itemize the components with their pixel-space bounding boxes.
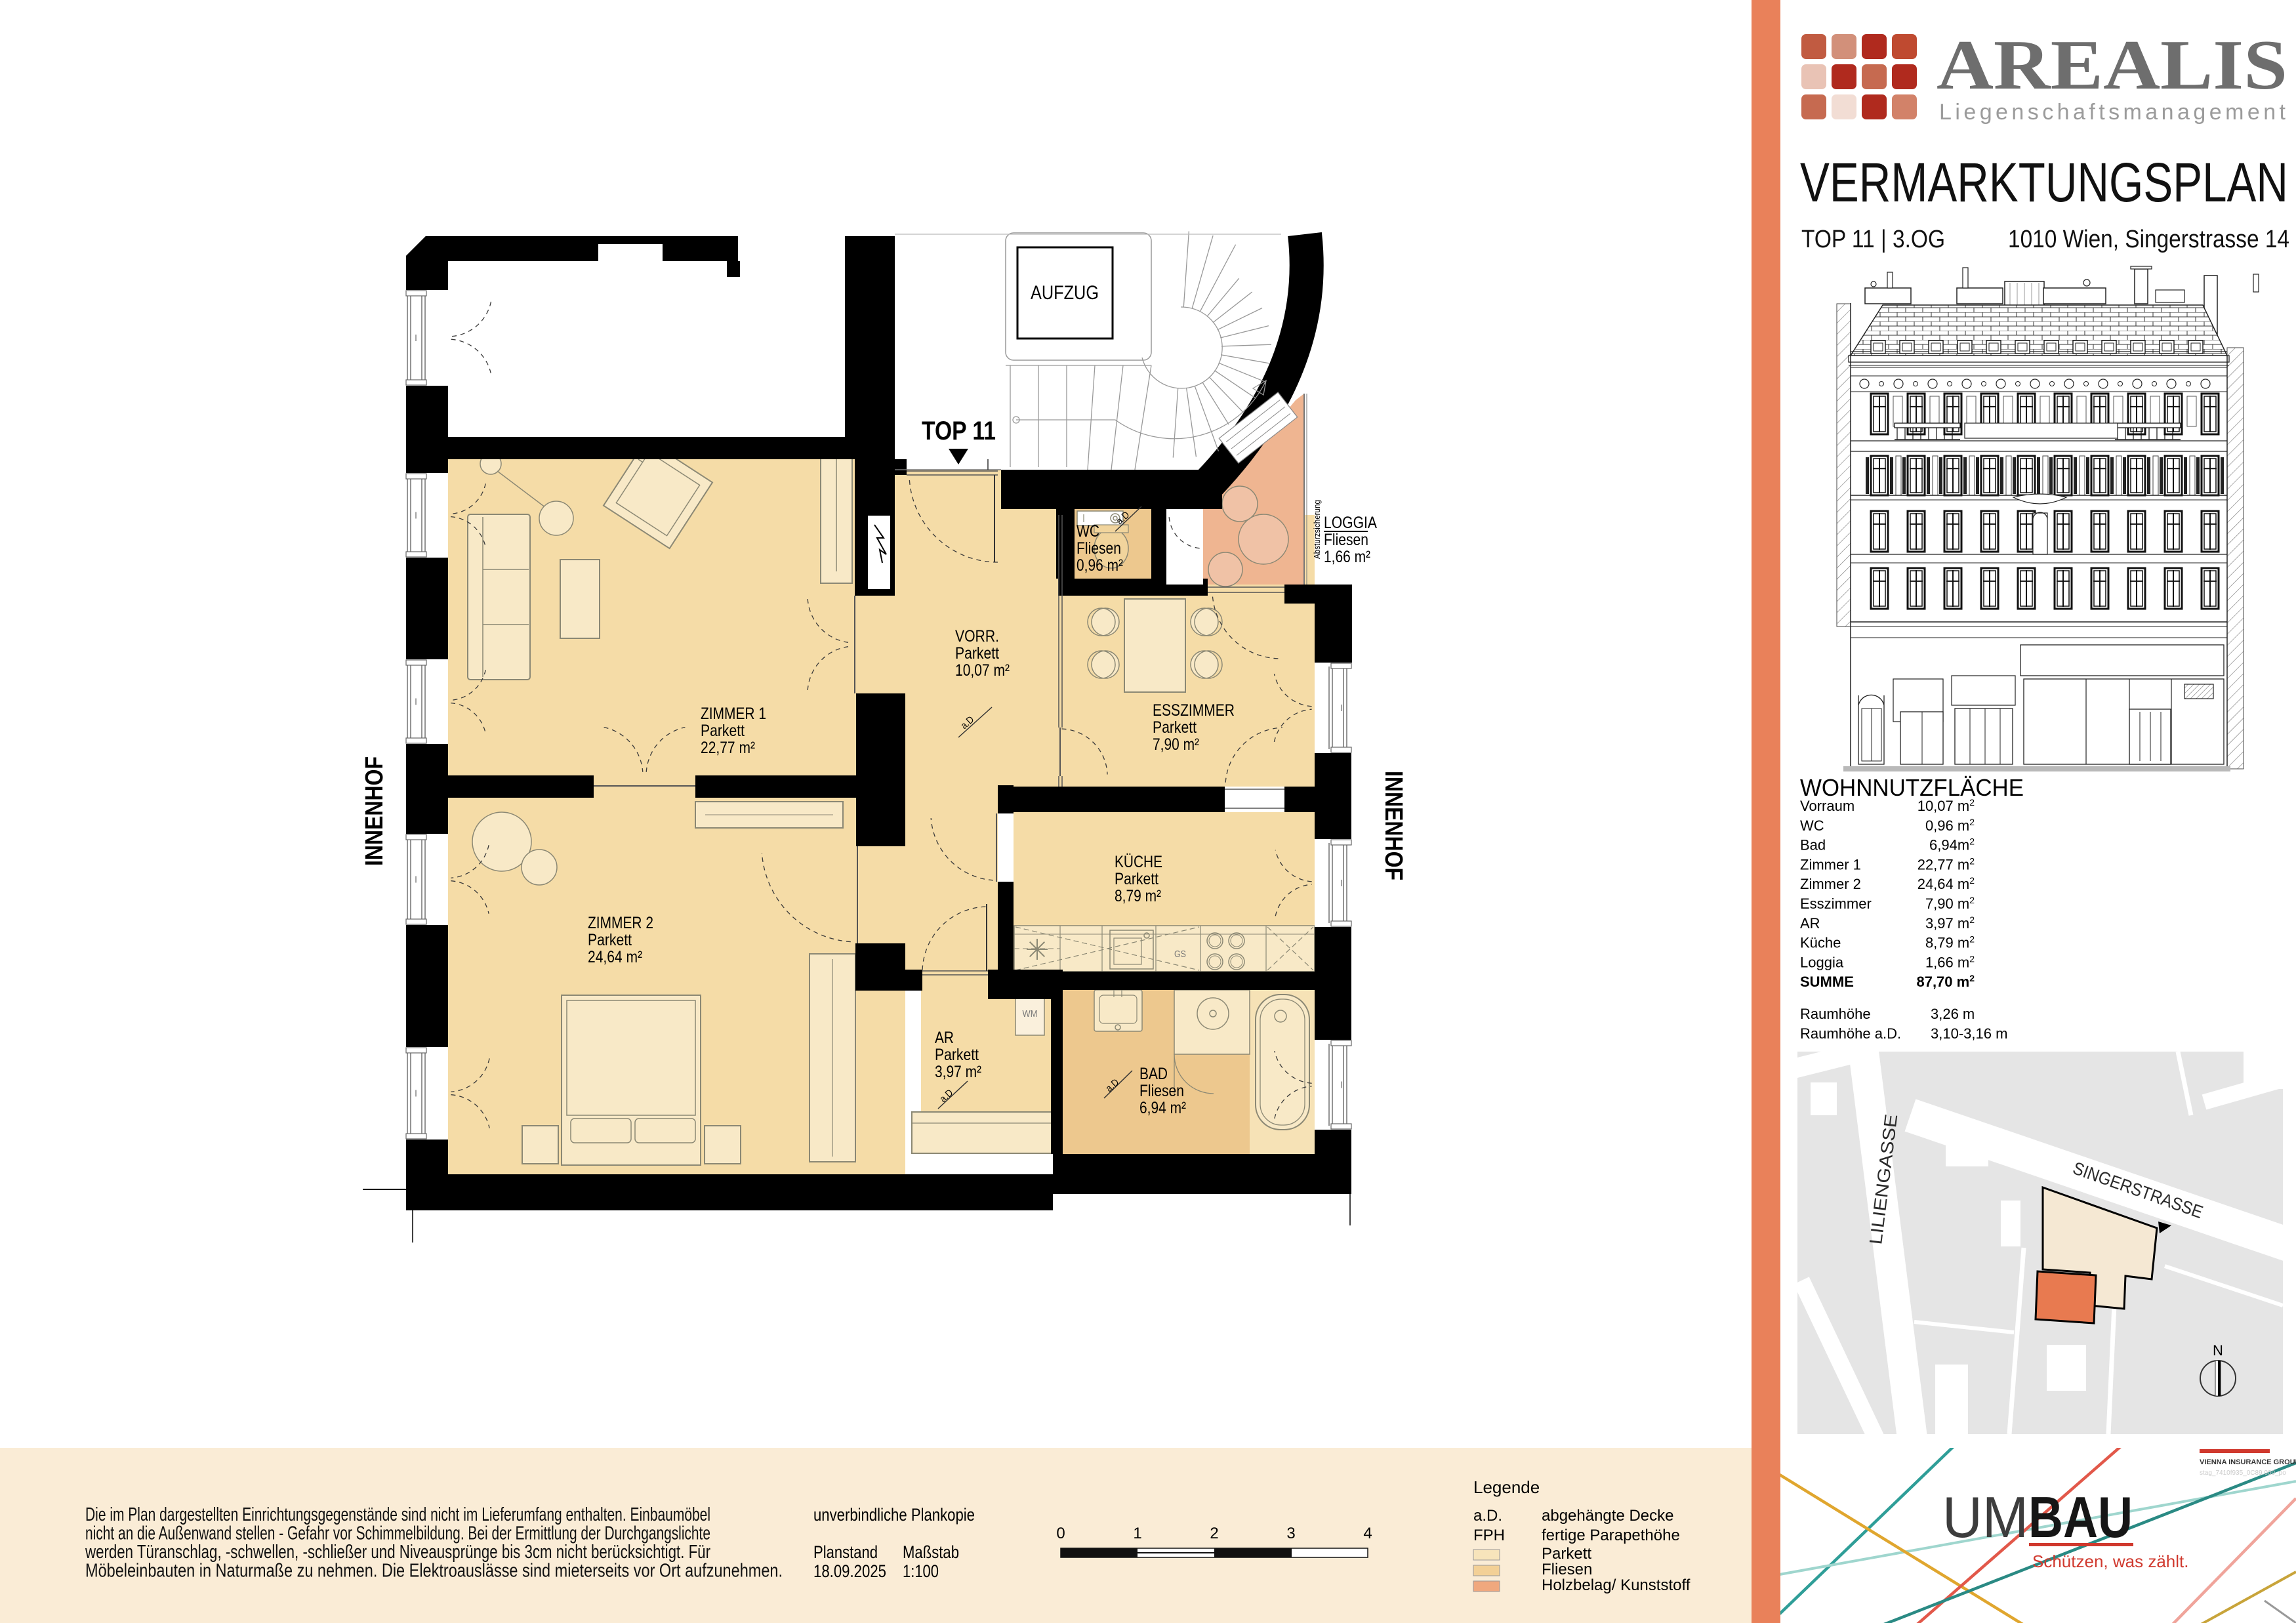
svg-text:22,77 m2: 22,77 m2: [1917, 855, 1975, 873]
svg-text:Liegenschaftsmanagement: Liegenschaftsmanagement: [1939, 100, 2286, 125]
svg-text:WC: WC: [1800, 817, 1824, 834]
svg-text:Raumhöhe: Raumhöhe: [1800, 1006, 1871, 1022]
svg-text:AREALIS: AREALIS: [1937, 26, 2287, 104]
svg-text:WC: WC: [1076, 522, 1099, 541]
svg-text:BAD: BAD: [1139, 1065, 1168, 1083]
svg-text:4: 4: [1363, 1525, 1372, 1542]
svg-text:24,64 m²: 24,64 m²: [588, 948, 642, 966]
svg-text:Maßstab: Maßstab: [903, 1542, 959, 1562]
svg-text:Parkett: Parkett: [588, 931, 632, 949]
svg-text:Parkett: Parkett: [701, 722, 745, 740]
svg-text:AR: AR: [1800, 915, 1820, 932]
svg-text:22,77 m²: 22,77 m²: [701, 739, 755, 757]
svg-text:Holzbelag/ Kunststoff: Holzbelag/ Kunststoff: [1542, 1576, 1691, 1594]
svg-text:Legende: Legende: [1473, 1477, 1540, 1497]
svg-text:GS: GS: [1174, 949, 1186, 960]
svg-text:Küche: Küche: [1800, 935, 1841, 951]
svg-text:Zimmer 2: Zimmer 2: [1800, 876, 1861, 892]
svg-text:AR: AR: [935, 1029, 954, 1047]
svg-text:VIENNA INSURANCE GROUP: VIENNA INSURANCE GROUP: [2200, 1458, 2296, 1466]
svg-text:0,96 m2: 0,96 m2: [1925, 817, 1975, 834]
svg-text:AUFZUG: AUFZUG: [1031, 282, 1099, 304]
svg-text:TOP 11: TOP 11: [922, 417, 996, 445]
svg-text:3,10-3,16 m: 3,10-3,16 m: [1931, 1025, 2007, 1042]
svg-text:VORR.: VORR.: [955, 627, 999, 646]
svg-text:1010 Wien, Singerstrasse 14: 1010 Wien, Singerstrasse 14: [2008, 226, 2289, 253]
svg-text:SUMME: SUMME: [1800, 974, 1854, 990]
svg-text:UM: UM: [1942, 1485, 2028, 1550]
svg-text:24,64 m2: 24,64 m2: [1917, 875, 1975, 892]
svg-text:INNENHOF: INNENHOF: [1380, 771, 1407, 880]
svg-text:0,96 m²: 0,96 m²: [1076, 556, 1123, 575]
svg-text:stag_7410f935_0C89.000_po: stag_7410f935_0C89.000_po: [2200, 1469, 2286, 1477]
svg-text:3,97 m²: 3,97 m²: [935, 1063, 981, 1081]
svg-text:nicht an die Außenwand stellen: nicht an die Außenwand stellen - Gefahr …: [85, 1523, 710, 1544]
svg-text:ZIMMER 1: ZIMMER 1: [701, 705, 766, 723]
svg-text:18.09.2025: 18.09.2025: [813, 1561, 886, 1581]
svg-text:Absturzsicherung: Absturzsicherung: [1312, 500, 1322, 559]
svg-text:unverbindliche Plankopie: unverbindliche Plankopie: [813, 1505, 975, 1525]
svg-text:WM: WM: [1023, 1008, 1038, 1019]
svg-text:Parkett: Parkett: [1153, 718, 1197, 737]
svg-text:6,94 m²: 6,94 m²: [1139, 1099, 1186, 1117]
svg-text:Esszimmer: Esszimmer: [1800, 895, 1872, 912]
svg-text:1:100: 1:100: [903, 1561, 939, 1581]
svg-text:8,79 m²: 8,79 m²: [1115, 887, 1161, 905]
svg-text:WOHNNUTZFLÄCHE: WOHNNUTZFLÄCHE: [1800, 774, 2024, 801]
svg-text:TOP 11 | 3.OG: TOP 11 | 3.OG: [1801, 226, 1945, 253]
svg-text:Schützen, was zählt.: Schützen, was zählt.: [2032, 1551, 2188, 1571]
svg-text:Die im Plan dargestellten Einr: Die im Plan dargestellten Einrichtungsge…: [85, 1504, 710, 1525]
svg-text:1: 1: [1133, 1525, 1141, 1542]
svg-text:Fliesen: Fliesen: [1139, 1082, 1184, 1100]
svg-text:werden Türanschlag, -schwellen: werden Türanschlag, -schwellen, -schließ…: [85, 1542, 710, 1563]
svg-text:KÜCHE: KÜCHE: [1115, 853, 1162, 871]
svg-text:Raumhöhe a.D.: Raumhöhe a.D.: [1800, 1025, 1901, 1042]
svg-text:7,90 m2: 7,90 m2: [1925, 895, 1975, 912]
svg-text:INNENHOF: INNENHOF: [361, 756, 388, 866]
svg-text:BAU: BAU: [2028, 1485, 2133, 1550]
svg-text:2: 2: [1210, 1525, 1218, 1542]
svg-text:N: N: [2213, 1342, 2223, 1359]
svg-text:Vorraum: Vorraum: [1800, 798, 1855, 814]
svg-text:10,07 m2: 10,07 m2: [1917, 797, 1975, 814]
svg-text:ESSZIMMER: ESSZIMMER: [1153, 701, 1235, 720]
svg-text:Fliesen: Fliesen: [1542, 1561, 1592, 1578]
svg-text:Parkett: Parkett: [1115, 870, 1158, 888]
svg-text:VERMARKTUNGSPLAN: VERMARKTUNGSPLAN: [1800, 152, 2288, 213]
svg-text:Parkett: Parkett: [1542, 1545, 1591, 1563]
svg-text:LOGGIA: LOGGIA: [1324, 514, 1377, 532]
svg-text:Fliesen: Fliesen: [1076, 539, 1121, 558]
svg-text:87,70 m2: 87,70 m2: [1916, 973, 1975, 990]
svg-text:Möbeleinbauten in Naturmaße zu: Möbeleinbauten in Naturmaße zu nehmen. D…: [85, 1561, 783, 1582]
svg-text:3,97 m2: 3,97 m2: [1925, 914, 1975, 932]
svg-text:10,07 m²: 10,07 m²: [955, 661, 1010, 680]
svg-text:1,66 m2: 1,66 m2: [1925, 953, 1975, 970]
svg-text:Loggia: Loggia: [1800, 954, 1844, 970]
svg-text:Zimmer 1: Zimmer 1: [1800, 856, 1861, 873]
svg-text:ZIMMER 2: ZIMMER 2: [588, 914, 653, 932]
svg-text:abgehängte Decke: abgehängte Decke: [1542, 1507, 1674, 1525]
svg-text:3: 3: [1286, 1525, 1295, 1542]
svg-text:7,90 m²: 7,90 m²: [1153, 735, 1199, 754]
svg-text:Bad: Bad: [1800, 837, 1826, 853]
svg-text:0: 0: [1056, 1525, 1065, 1542]
svg-text:Fliesen: Fliesen: [1324, 531, 1368, 549]
svg-text:a.D.: a.D.: [1473, 1507, 1502, 1525]
svg-text:3,26 m: 3,26 m: [1931, 1006, 1975, 1022]
svg-text:8,79 m2: 8,79 m2: [1925, 934, 1975, 951]
svg-text:6,94m2: 6,94m2: [1929, 836, 1975, 853]
svg-text:fertige Parapethöhe: fertige Parapethöhe: [1542, 1527, 1680, 1544]
svg-text:Parkett: Parkett: [935, 1046, 979, 1064]
svg-text:FPH: FPH: [1473, 1527, 1505, 1544]
svg-text:1,66 m²: 1,66 m²: [1324, 548, 1370, 566]
svg-text:Planstand: Planstand: [813, 1542, 878, 1562]
svg-text:Parkett: Parkett: [955, 644, 999, 663]
